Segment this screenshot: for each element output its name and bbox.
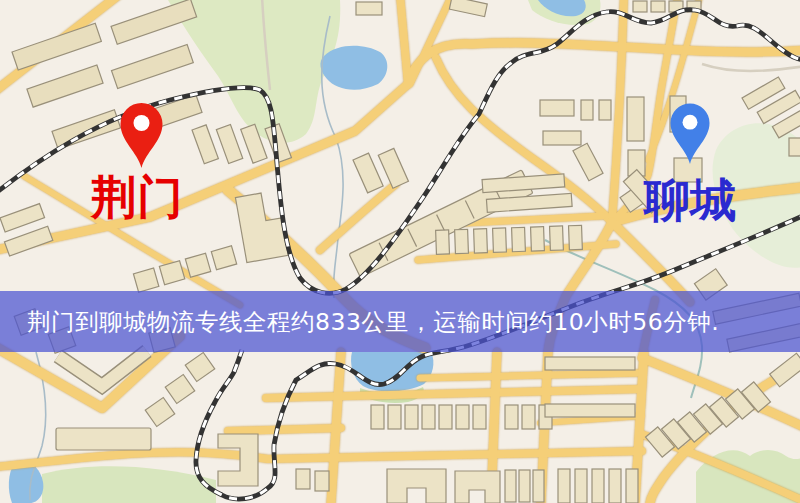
destination-city-label: 聊城 [642, 173, 736, 227]
route-info-text: 荆门到聊城物流专线全程约833公里，运输时间约10小时56分钟. [27, 308, 719, 336]
logistics-route-map: 荆门 聊城 荆门到聊城物流专线全程约833公里，运输时间约10小时56分钟. [0, 0, 800, 503]
map-canvas[interactable]: 荆门 聊城 荆门到聊城物流专线全程约833公里，运输时间约10小时56分钟. [0, 0, 800, 503]
origin-city-label: 荆门 [90, 170, 183, 224]
route-info-banner: 荆门到聊城物流专线全程约833公里，运输时间约10小时56分钟. [0, 291, 800, 352]
